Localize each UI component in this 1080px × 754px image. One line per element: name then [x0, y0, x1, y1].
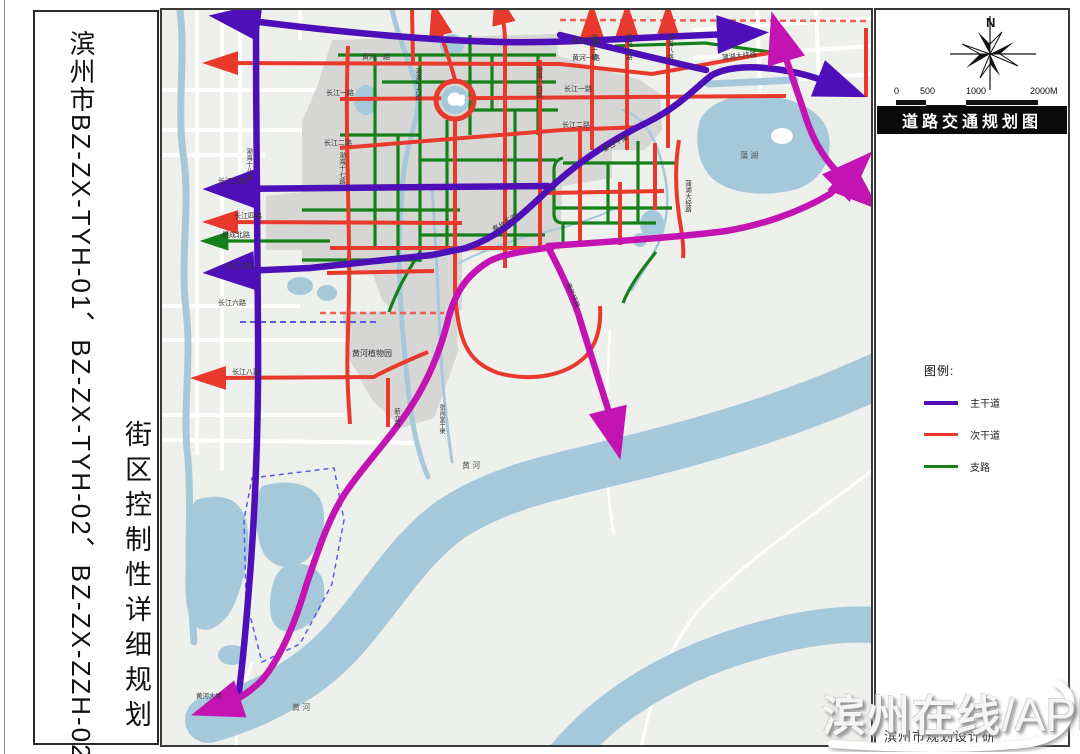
puhu-lake	[697, 95, 829, 194]
svg-text:黄 河: 黄 河	[292, 702, 310, 712]
roundabout	[436, 81, 474, 119]
scale-tick: 2000M	[1030, 86, 1058, 96]
svg-text:长江四路: 长江四路	[234, 211, 262, 220]
secondary-road-swatch	[924, 433, 958, 436]
legend: 图例: 主干道 次干道 支路	[924, 362, 1064, 491]
plan-sheet: 滨州市BZ-ZX-TYH-01、BZ-ZX-TYH-02、BZ-ZX-ZZH-0…	[0, 0, 1080, 754]
scale-tick: 500	[920, 86, 935, 96]
road-changjiang-3	[222, 186, 548, 189]
svg-text:长江三路: 长江三路	[218, 176, 246, 185]
svg-text:长江一路: 长江一路	[564, 84, 592, 93]
branch-road-swatch	[924, 465, 958, 468]
svg-text:长江二路: 长江二路	[562, 120, 590, 129]
legend-item-main-road: 主干道	[924, 395, 1064, 410]
legend-item-secondary-road: 次干道	[924, 427, 1064, 442]
svg-text:长江二路: 长江二路	[324, 138, 352, 147]
puhu-channel	[708, 80, 795, 84]
svg-text:长江一路: 长江一路	[326, 88, 354, 97]
svg-text:长江六路: 长江六路	[218, 298, 246, 307]
map-title-banner: 道路交通规划图	[877, 106, 1067, 134]
north-label: N	[986, 15, 995, 30]
side-panel: N 0 500 1000 2000M 道路交通规划图 图例:	[874, 8, 1070, 747]
puhu-island	[771, 128, 793, 144]
svg-text:蒲 湖: 蒲 湖	[740, 150, 758, 160]
scale-tick: 1000	[966, 86, 986, 96]
svg-text:黄河大坝: 黄河大坝	[196, 691, 223, 700]
svg-text:黄河植物园: 黄河植物园	[352, 348, 392, 358]
svg-text:黄河一路: 黄河一路	[362, 52, 390, 61]
legend-title: 图例:	[924, 362, 1064, 379]
main-road-swatch	[924, 401, 958, 405]
svg-text:长江五路: 长江五路	[226, 261, 254, 270]
svg-text:黄 河: 黄 河	[462, 460, 480, 470]
svg-text:垦成北路: 垦成北路	[222, 230, 250, 239]
legend-item-branch-road: 支路	[924, 459, 1064, 474]
svg-text:长江八路: 长江八路	[232, 367, 260, 376]
design-institute-credit: 滨州市规划设计研	[884, 726, 996, 745]
north-compass: N	[936, 14, 1046, 94]
scale-tick: 0	[894, 86, 899, 96]
svg-text:张肖堂干渠: 张肖堂干渠	[438, 403, 445, 435]
